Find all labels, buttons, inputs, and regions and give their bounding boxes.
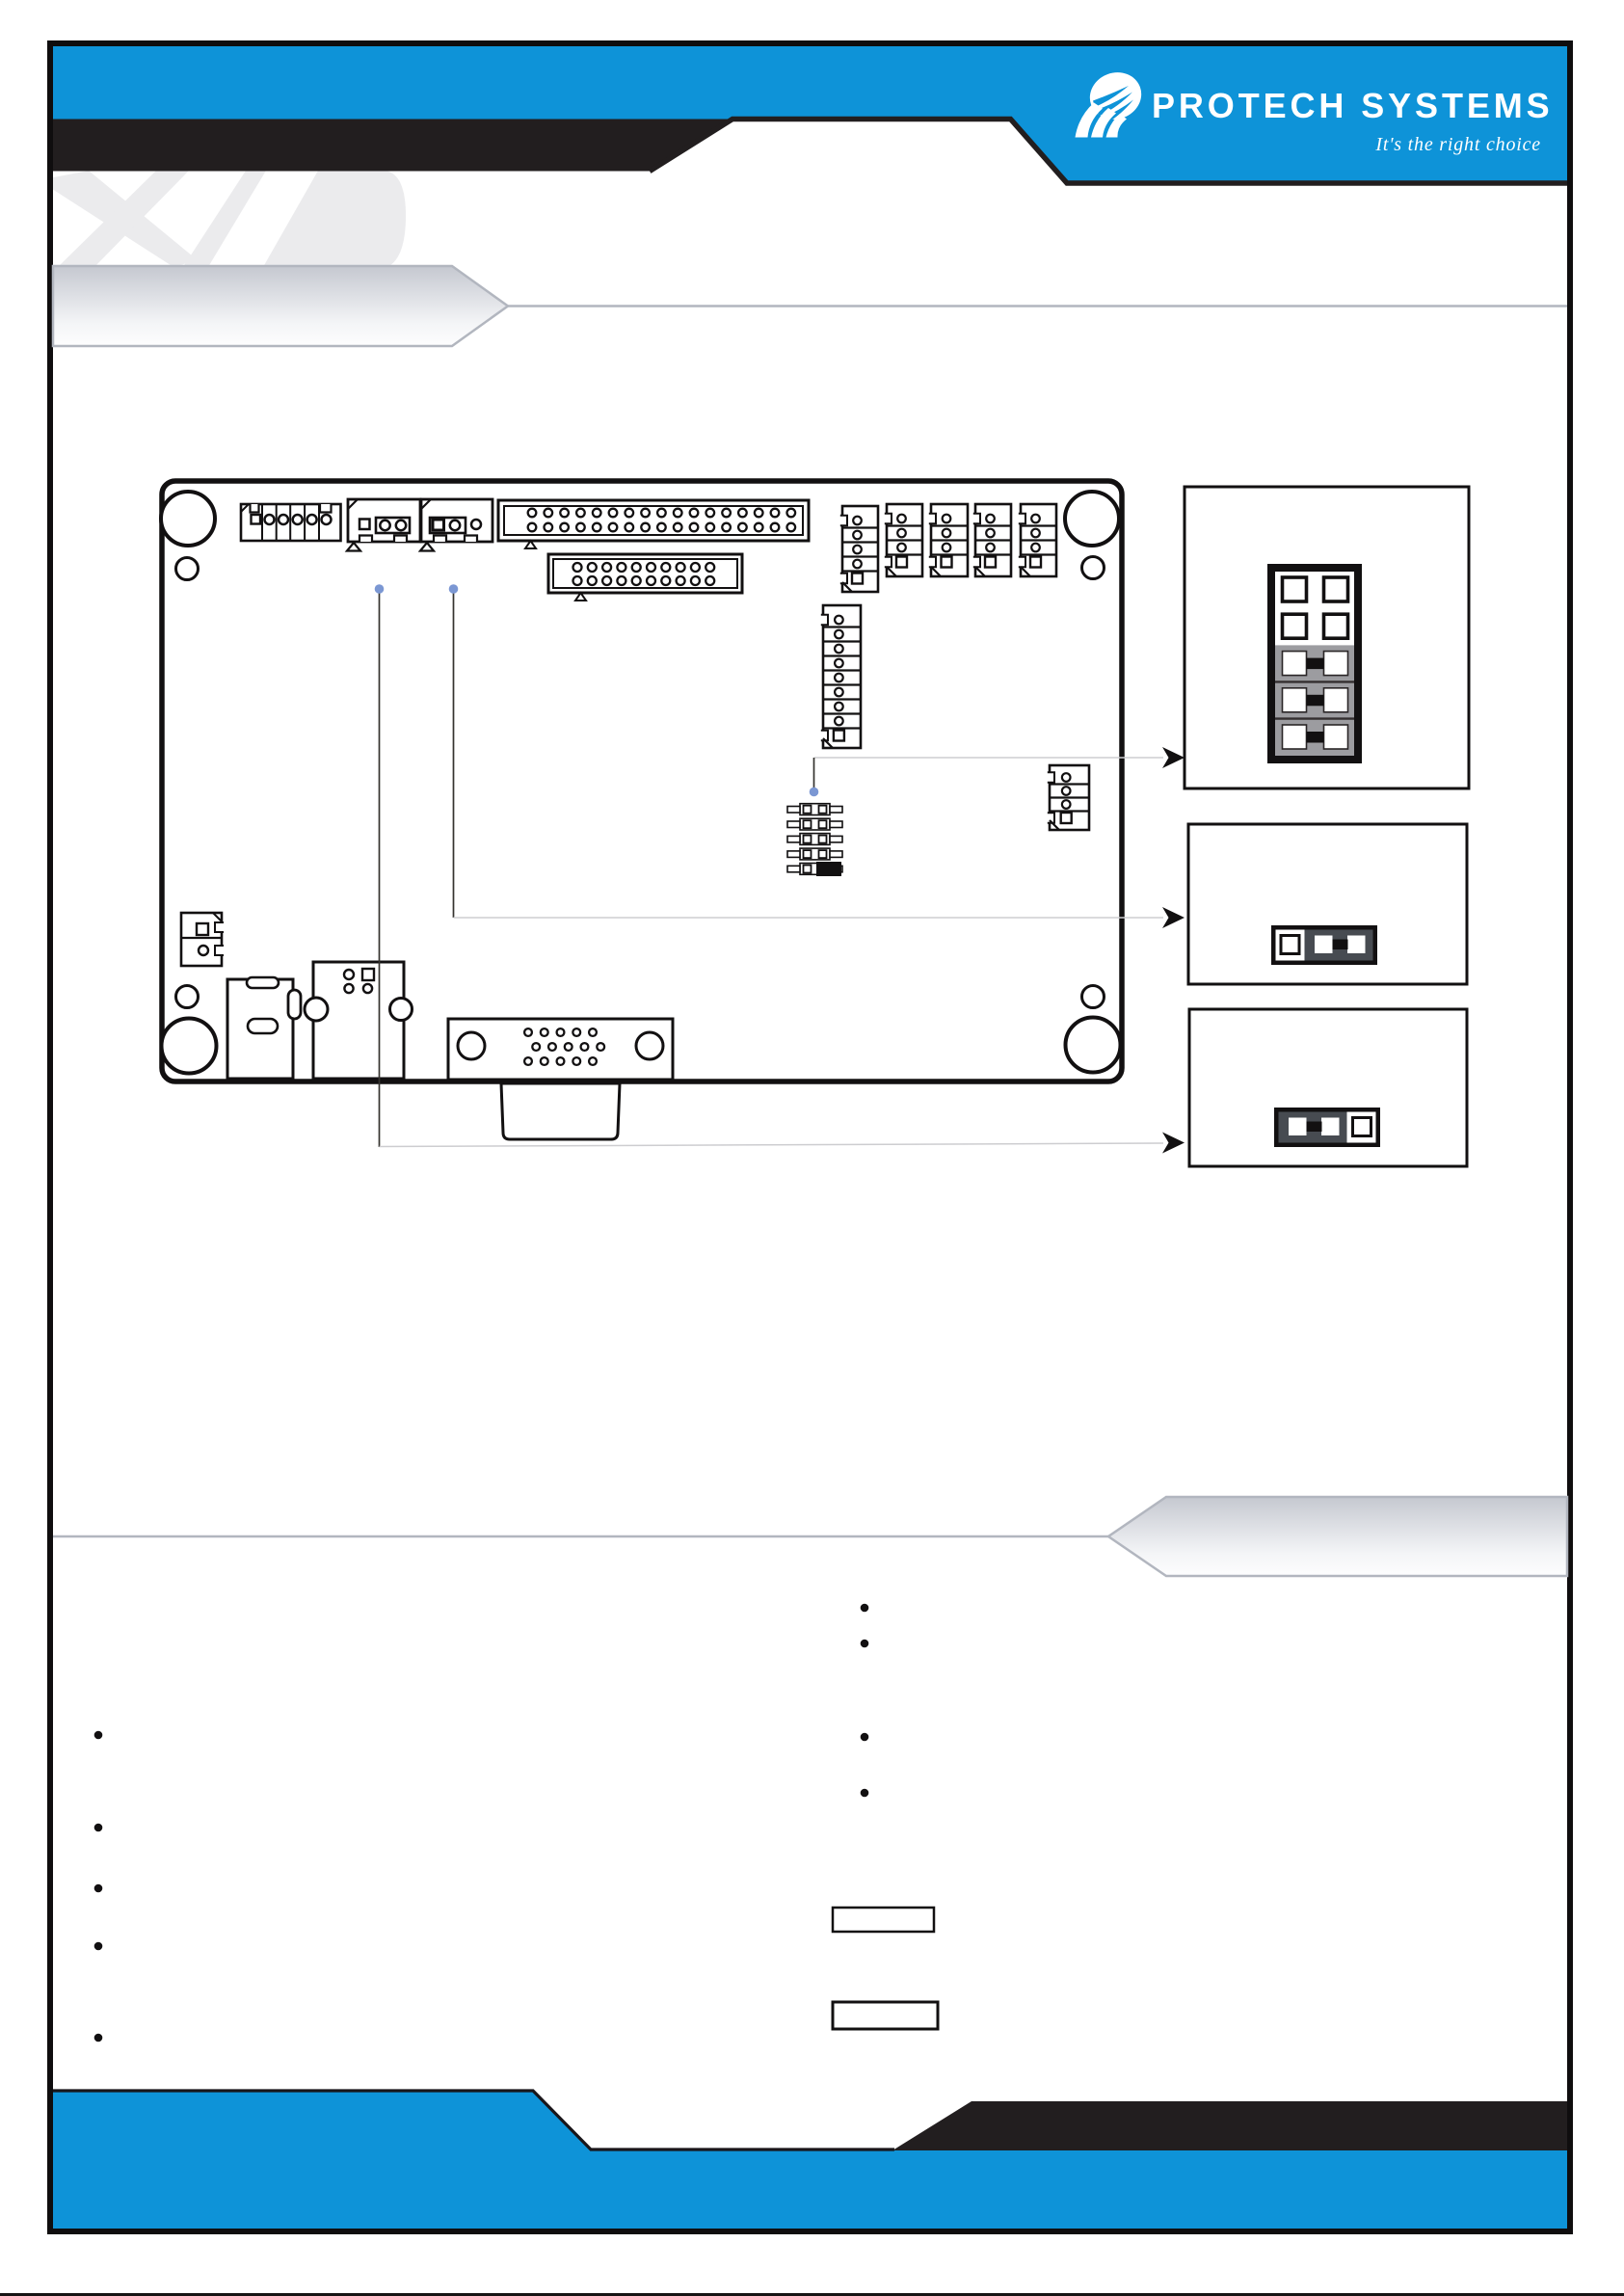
svg-text:It's the right choice: It's the right choice	[1374, 134, 1541, 155]
svg-text:PROTECH SYSTEMS: PROTECH SYSTEMS	[1152, 86, 1554, 125]
